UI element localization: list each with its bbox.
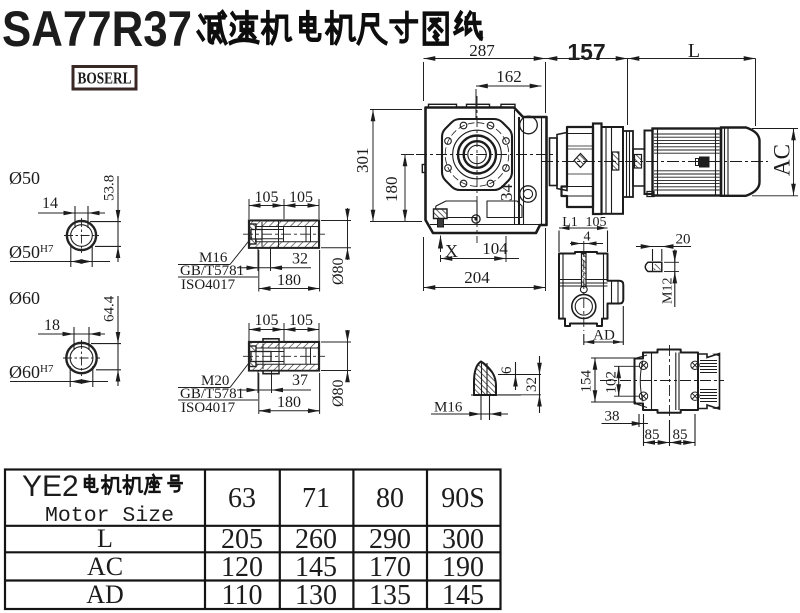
svg-text:105: 105 <box>289 189 313 206</box>
svg-text:32: 32 <box>524 377 540 392</box>
svg-text:6: 6 <box>499 366 515 374</box>
svg-text:38: 38 <box>605 409 620 425</box>
svg-text:AC: AC <box>87 552 123 581</box>
svg-text:157: 157 <box>567 39 605 65</box>
svg-text:53.8: 53.8 <box>102 175 118 201</box>
svg-text:287: 287 <box>469 41 495 60</box>
svg-text:120: 120 <box>221 552 263 583</box>
svg-text:105: 105 <box>289 312 313 329</box>
svg-text:145: 145 <box>442 580 484 611</box>
svg-text:80: 80 <box>376 483 404 514</box>
svg-text:YE2: YE2 <box>22 470 79 503</box>
svg-text:105: 105 <box>255 189 279 206</box>
svg-text:32: 32 <box>292 251 308 268</box>
svg-text:102: 102 <box>604 371 620 394</box>
svg-text:BOSERL: BOSERL <box>78 69 132 88</box>
svg-text:162: 162 <box>496 67 522 86</box>
svg-text:37: 37 <box>292 372 308 389</box>
svg-text:63: 63 <box>228 483 256 514</box>
svg-text:301: 301 <box>353 148 372 174</box>
svg-text:Ø60: Ø60 <box>9 288 40 308</box>
svg-text:104: 104 <box>482 239 508 258</box>
svg-text:Ø80: Ø80 <box>330 379 347 407</box>
svg-text:204: 204 <box>464 268 490 287</box>
svg-text:M16: M16 <box>434 400 463 416</box>
svg-text:ISO4017: ISO4017 <box>181 400 236 416</box>
svg-text:85: 85 <box>673 427 688 443</box>
svg-text:M12: M12 <box>661 278 676 304</box>
svg-text:154: 154 <box>579 370 595 393</box>
svg-text:180: 180 <box>277 394 301 411</box>
svg-text:AD: AD <box>86 580 124 609</box>
svg-text:300: 300 <box>442 524 484 555</box>
svg-text:AC: AC <box>770 144 795 176</box>
svg-text:AD: AD <box>593 328 615 344</box>
svg-text:130: 130 <box>295 580 337 611</box>
svg-text:190: 190 <box>442 552 484 583</box>
svg-text:85: 85 <box>645 427 660 443</box>
svg-text:ISO4017: ISO4017 <box>181 277 236 293</box>
svg-text:18: 18 <box>44 317 60 334</box>
svg-text:64.4: 64.4 <box>102 295 118 322</box>
svg-text:90S: 90S <box>441 483 485 514</box>
svg-text:110: 110 <box>222 580 263 611</box>
svg-text:205: 205 <box>221 524 263 555</box>
svg-text:180: 180 <box>382 177 401 203</box>
svg-text:145: 145 <box>295 552 337 583</box>
svg-text:L: L <box>97 524 113 553</box>
svg-text:260: 260 <box>295 524 337 555</box>
svg-text:180: 180 <box>277 272 301 289</box>
svg-text:105: 105 <box>255 312 279 329</box>
svg-text:4: 4 <box>584 230 591 245</box>
svg-text:135: 135 <box>369 580 411 611</box>
svg-text:71: 71 <box>302 483 330 514</box>
svg-text:Ø80: Ø80 <box>330 257 347 285</box>
svg-text:Ø50: Ø50 <box>9 168 40 188</box>
svg-text:290: 290 <box>369 524 411 555</box>
svg-text:20: 20 <box>676 232 691 248</box>
svg-text:170: 170 <box>369 552 411 583</box>
svg-text:34: 34 <box>497 184 516 202</box>
svg-text:14: 14 <box>42 195 58 212</box>
svg-text:SA77R37: SA77R37 <box>2 1 192 57</box>
